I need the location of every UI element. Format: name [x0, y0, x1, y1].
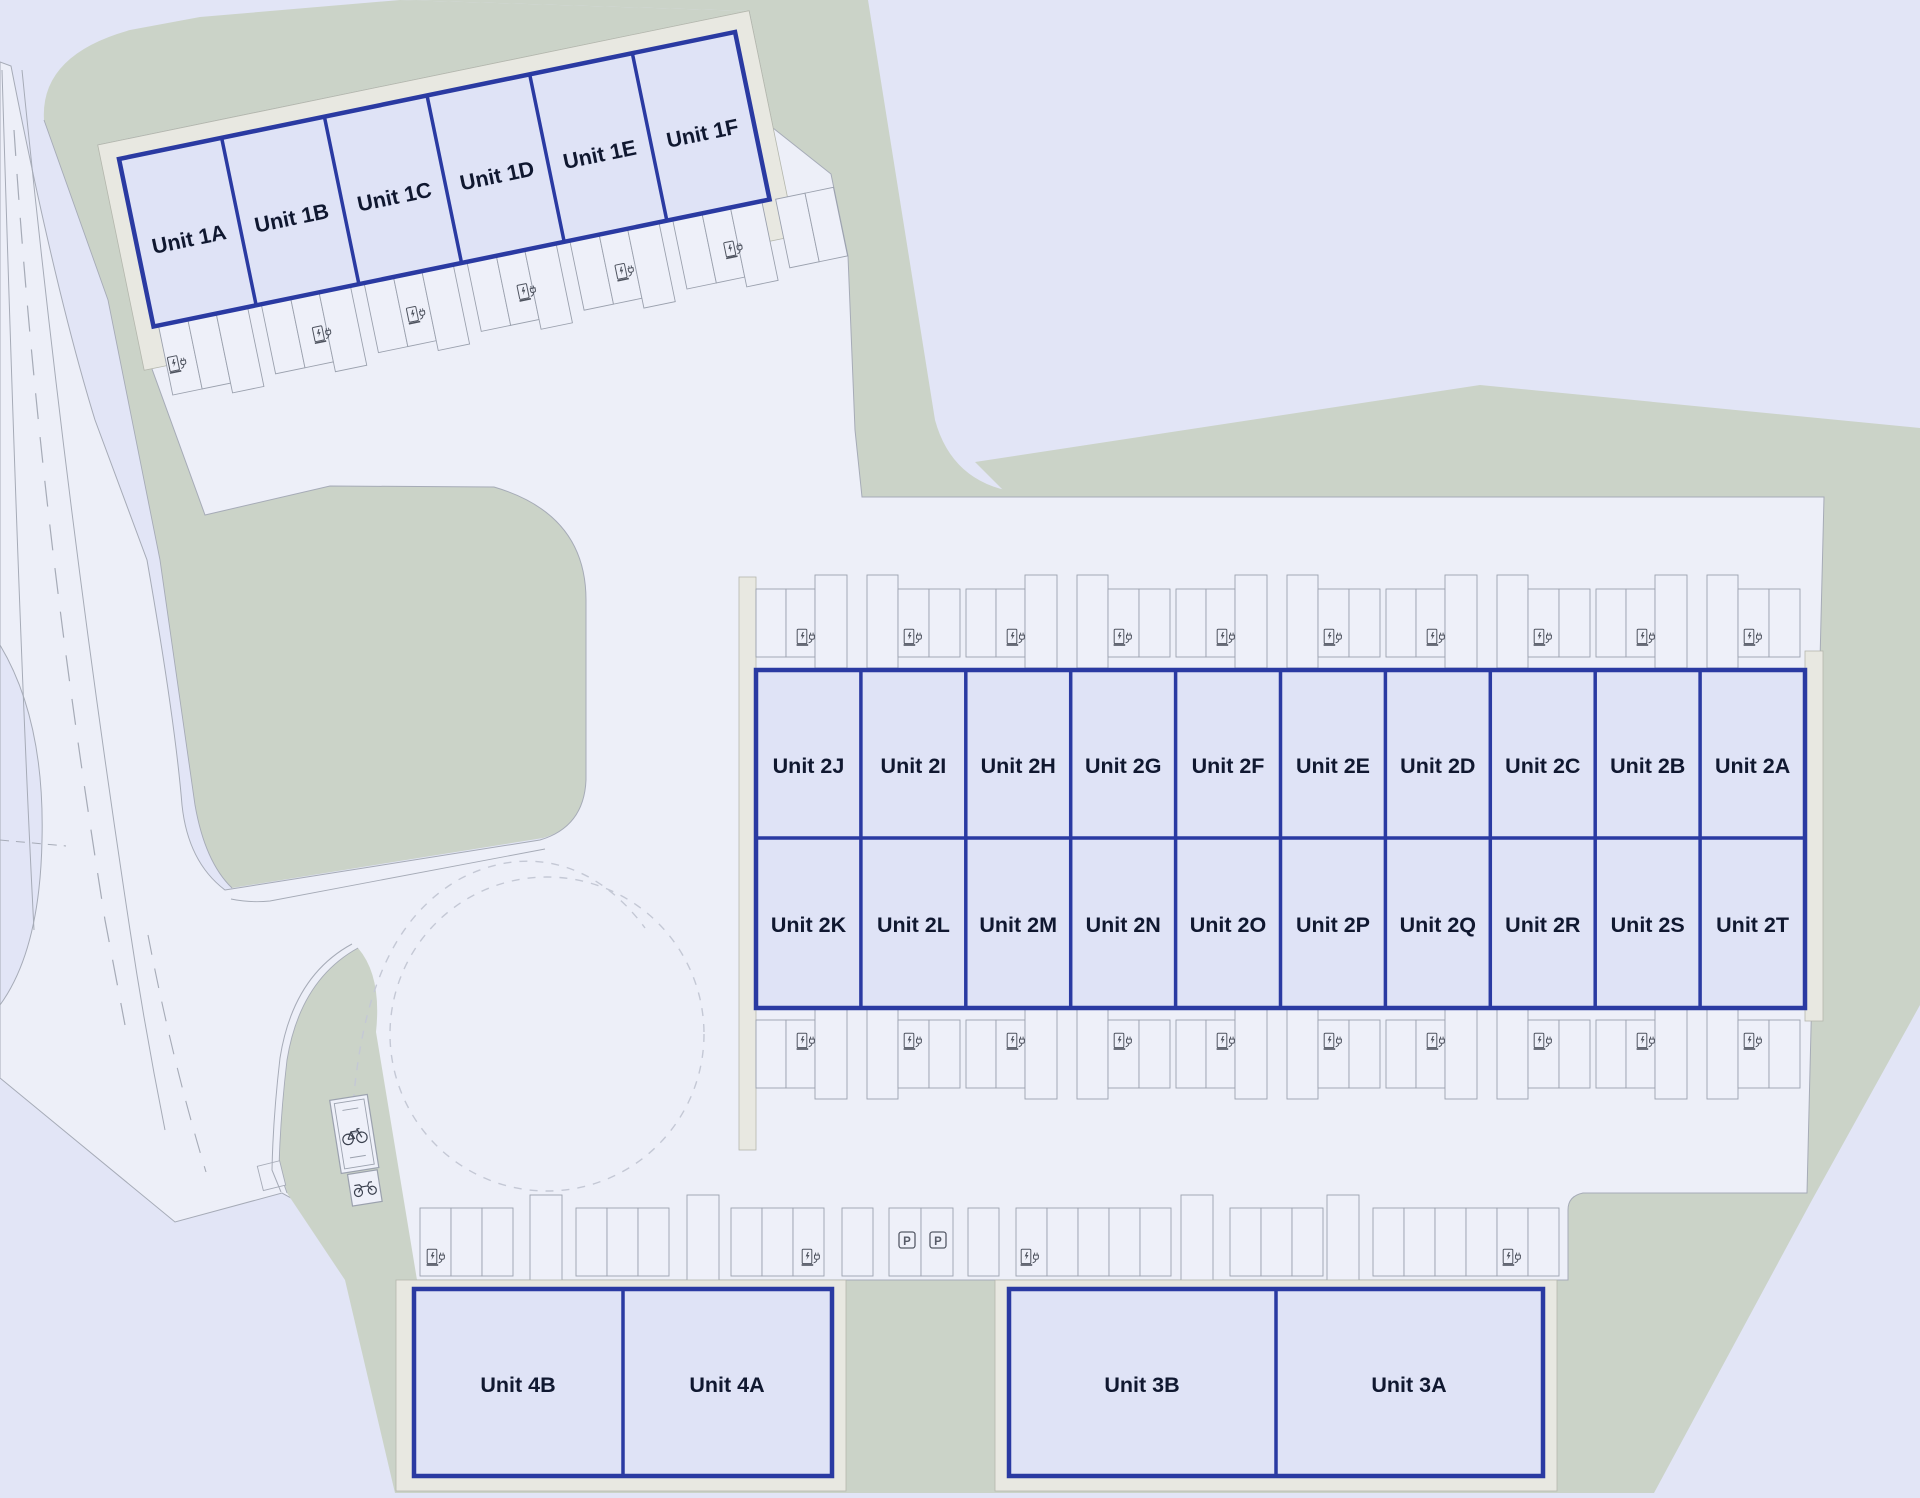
svg-text:Unit 4A: Unit 4A: [689, 1373, 764, 1397]
svg-text:Unit 3A: Unit 3A: [1371, 1373, 1446, 1397]
svg-text:P: P: [903, 1236, 911, 1248]
svg-text:Unit 2C: Unit 2C: [1505, 754, 1580, 778]
svg-text:P: P: [934, 1236, 942, 1248]
svg-text:Unit 2Q: Unit 2Q: [1400, 913, 1476, 937]
svg-text:Unit 2L: Unit 2L: [877, 913, 950, 937]
svg-text:Unit 2O: Unit 2O: [1190, 913, 1266, 937]
svg-text:Unit 2E: Unit 2E: [1296, 754, 1370, 778]
svg-text:Unit 2B: Unit 2B: [1610, 754, 1685, 778]
svg-text:Unit 2P: Unit 2P: [1296, 913, 1370, 937]
svg-text:Unit 2S: Unit 2S: [1611, 913, 1685, 937]
svg-text:Unit 2M: Unit 2M: [979, 913, 1057, 937]
svg-text:Unit 2G: Unit 2G: [1085, 754, 1161, 778]
svg-text:Unit 2J: Unit 2J: [773, 754, 845, 778]
svg-text:Unit 2N: Unit 2N: [1086, 913, 1161, 937]
svg-text:Unit 2R: Unit 2R: [1505, 913, 1581, 937]
svg-text:Unit 2I: Unit 2I: [881, 754, 947, 778]
svg-text:Unit 2F: Unit 2F: [1192, 754, 1265, 778]
svg-text:Unit 2A: Unit 2A: [1715, 754, 1790, 778]
svg-text:Unit 2T: Unit 2T: [1716, 913, 1789, 937]
svg-text:Unit 3B: Unit 3B: [1104, 1373, 1179, 1397]
svg-text:Unit 2D: Unit 2D: [1400, 754, 1475, 778]
svg-text:Unit 2H: Unit 2H: [981, 754, 1056, 778]
svg-text:Unit 2K: Unit 2K: [771, 913, 847, 937]
svg-text:Unit 4B: Unit 4B: [480, 1373, 555, 1397]
